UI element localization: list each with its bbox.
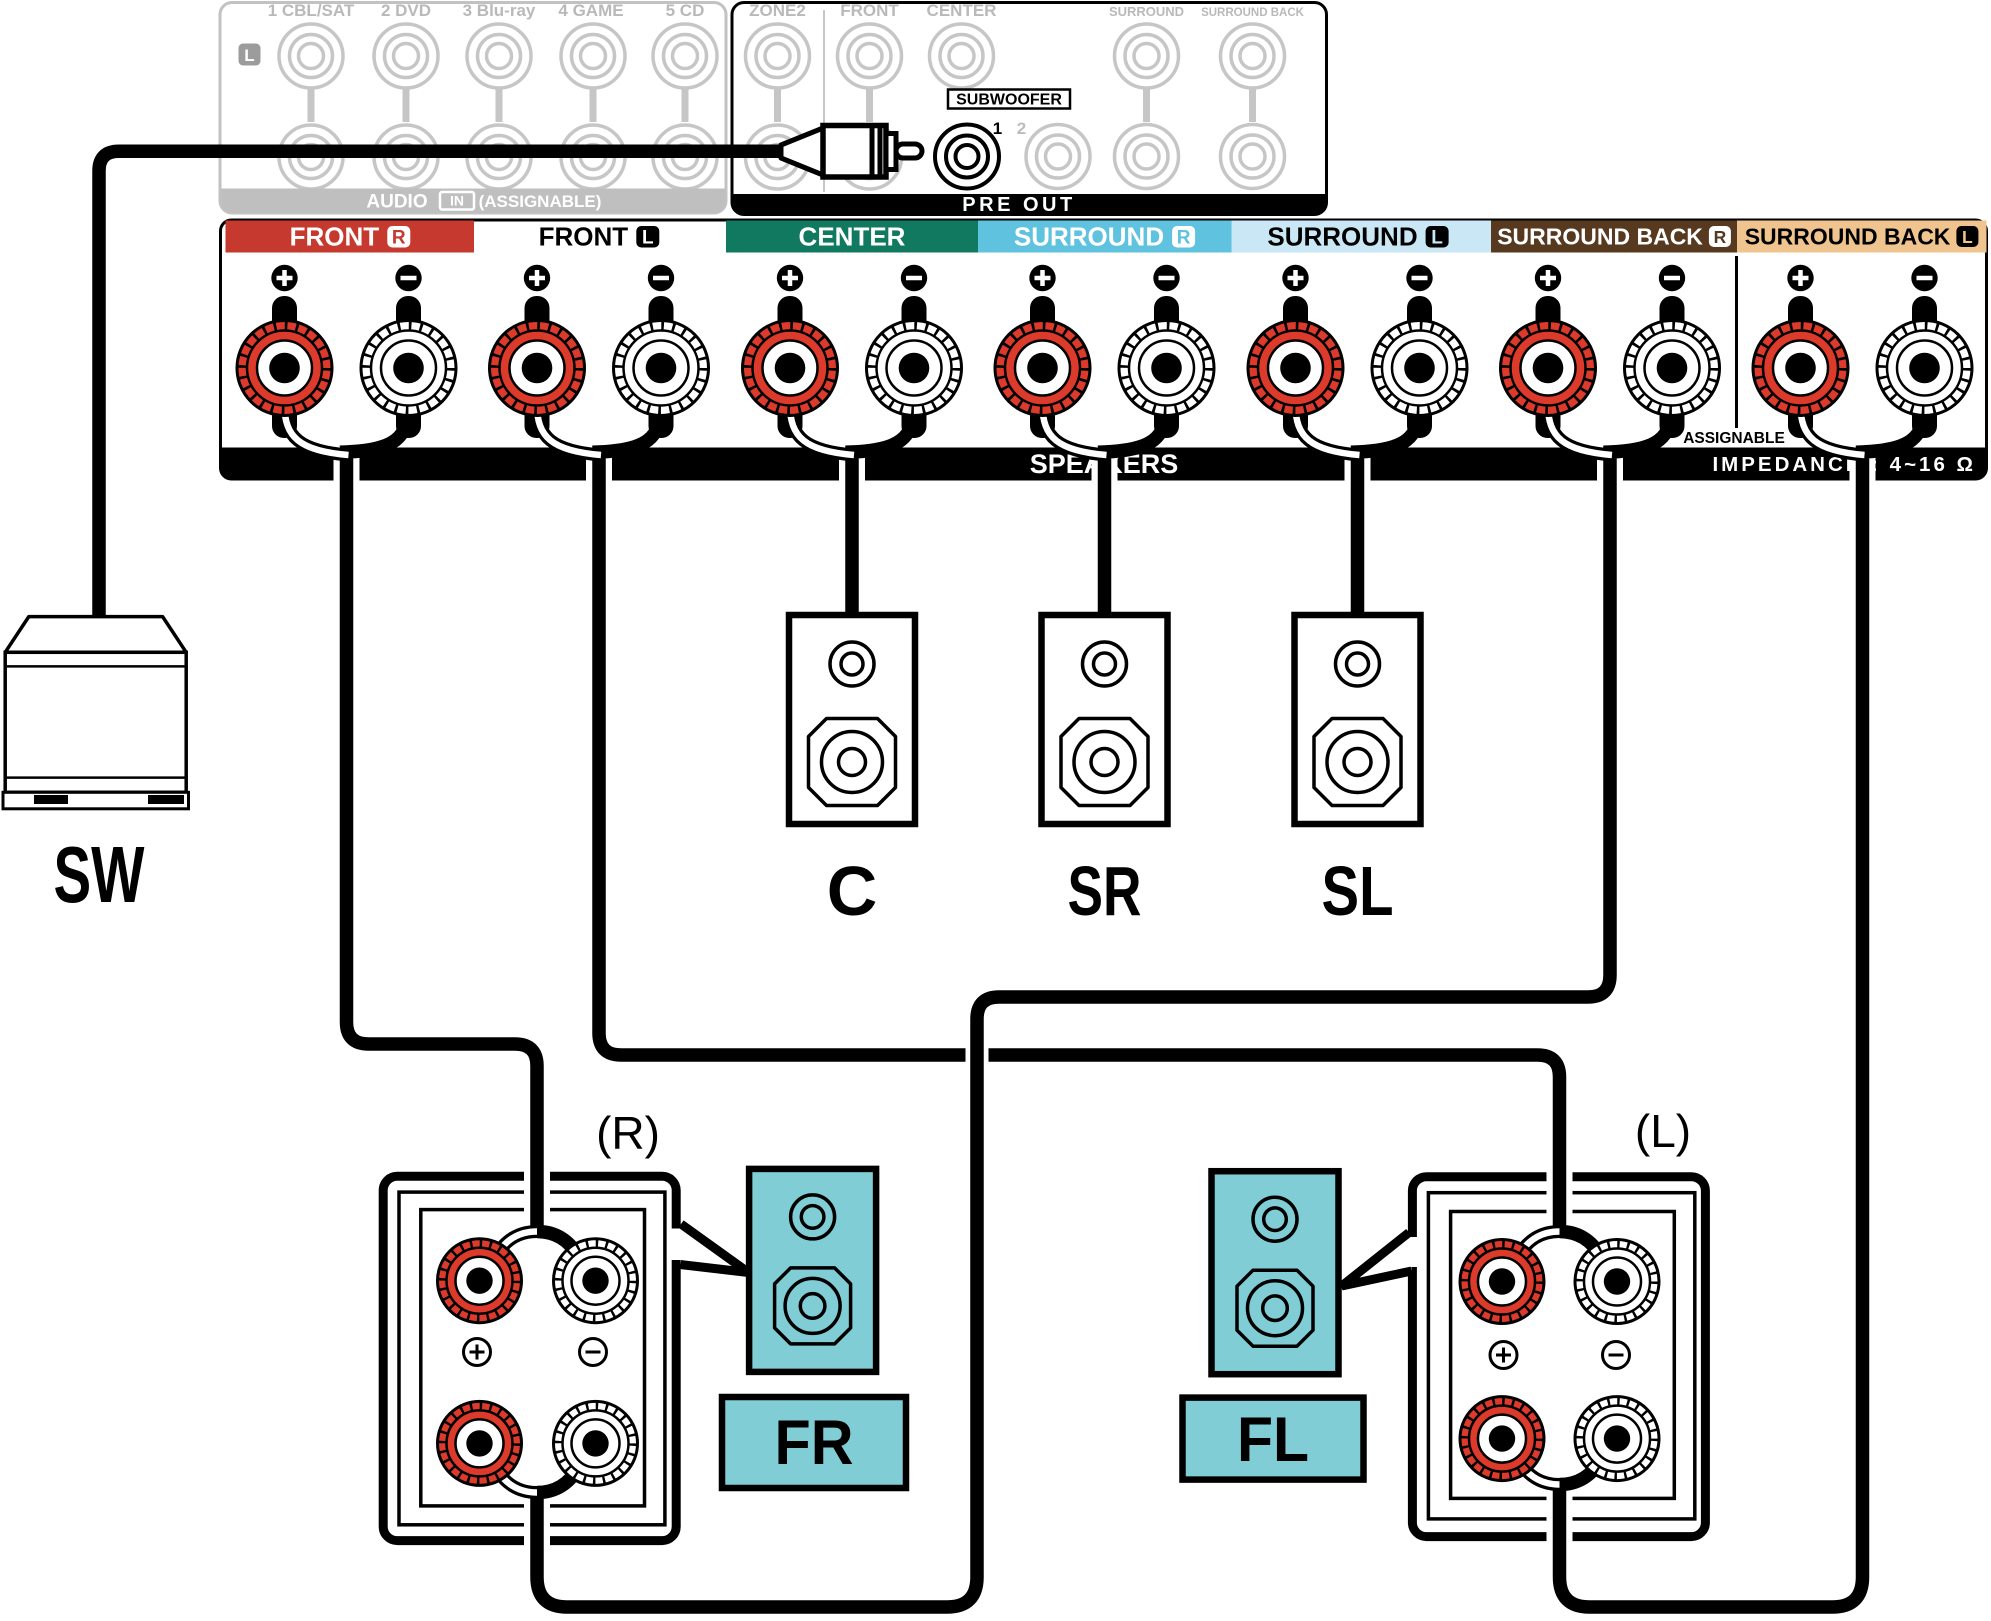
svg-text:1 CBL/SAT: 1 CBL/SAT	[268, 1, 355, 20]
svg-text:R: R	[392, 228, 406, 249]
svg-text:(L): (L)	[1635, 1105, 1691, 1157]
svg-text:L: L	[642, 228, 654, 249]
svg-text:FRONT: FRONT	[290, 222, 380, 252]
svg-text:L: L	[1962, 227, 1973, 247]
svg-text:FRONT: FRONT	[840, 1, 899, 20]
svg-text:SL: SL	[1322, 852, 1394, 930]
svg-text:5 CD: 5 CD	[666, 1, 705, 20]
svg-text:SR: SR	[1068, 852, 1142, 930]
svg-text:3 Blu-ray: 3 Blu-ray	[463, 1, 536, 20]
svg-text:FR: FR	[775, 1408, 854, 1478]
svg-text:L: L	[244, 46, 254, 65]
svg-text:C: C	[827, 852, 878, 930]
svg-text:SURROUND BACK: SURROUND BACK	[1201, 7, 1305, 19]
svg-text:SURROUND: SURROUND	[1109, 4, 1184, 19]
svg-text:ASSIGNABLE: ASSIGNABLE	[1683, 430, 1785, 447]
svg-text:FRONT: FRONT	[539, 222, 629, 252]
svg-text:2 DVD: 2 DVD	[381, 1, 431, 20]
svg-text:SURROUND BACK: SURROUND BACK	[1497, 224, 1703, 250]
svg-text:FL: FL	[1237, 1405, 1309, 1475]
svg-text:L: L	[1431, 228, 1443, 249]
svg-text:SW: SW	[54, 830, 145, 919]
svg-text:(R): (R)	[596, 1107, 660, 1159]
svg-text:SURROUND BACK: SURROUND BACK	[1745, 224, 1951, 250]
svg-text:1: 1	[993, 119, 1002, 138]
svg-text:SUBWOOFER: SUBWOOFER	[956, 92, 1062, 109]
svg-text:4 GAME: 4 GAME	[558, 1, 623, 20]
svg-text:ZONE2: ZONE2	[749, 1, 806, 20]
svg-text:IN: IN	[450, 193, 464, 209]
svg-text:AUDIO: AUDIO	[366, 192, 427, 213]
svg-text:CENTER: CENTER	[799, 222, 906, 252]
svg-text:2: 2	[1017, 119, 1026, 138]
svg-text:CENTER: CENTER	[927, 1, 997, 20]
svg-text:(ASSIGNABLE): (ASSIGNABLE)	[479, 192, 602, 211]
svg-text:SURROUND: SURROUND	[1014, 222, 1164, 252]
svg-text:R: R	[1714, 227, 1727, 247]
svg-text:PRE OUT: PRE OUT	[962, 194, 1075, 216]
svg-text:R: R	[1177, 228, 1191, 249]
svg-text:SURROUND: SURROUND	[1267, 222, 1417, 252]
